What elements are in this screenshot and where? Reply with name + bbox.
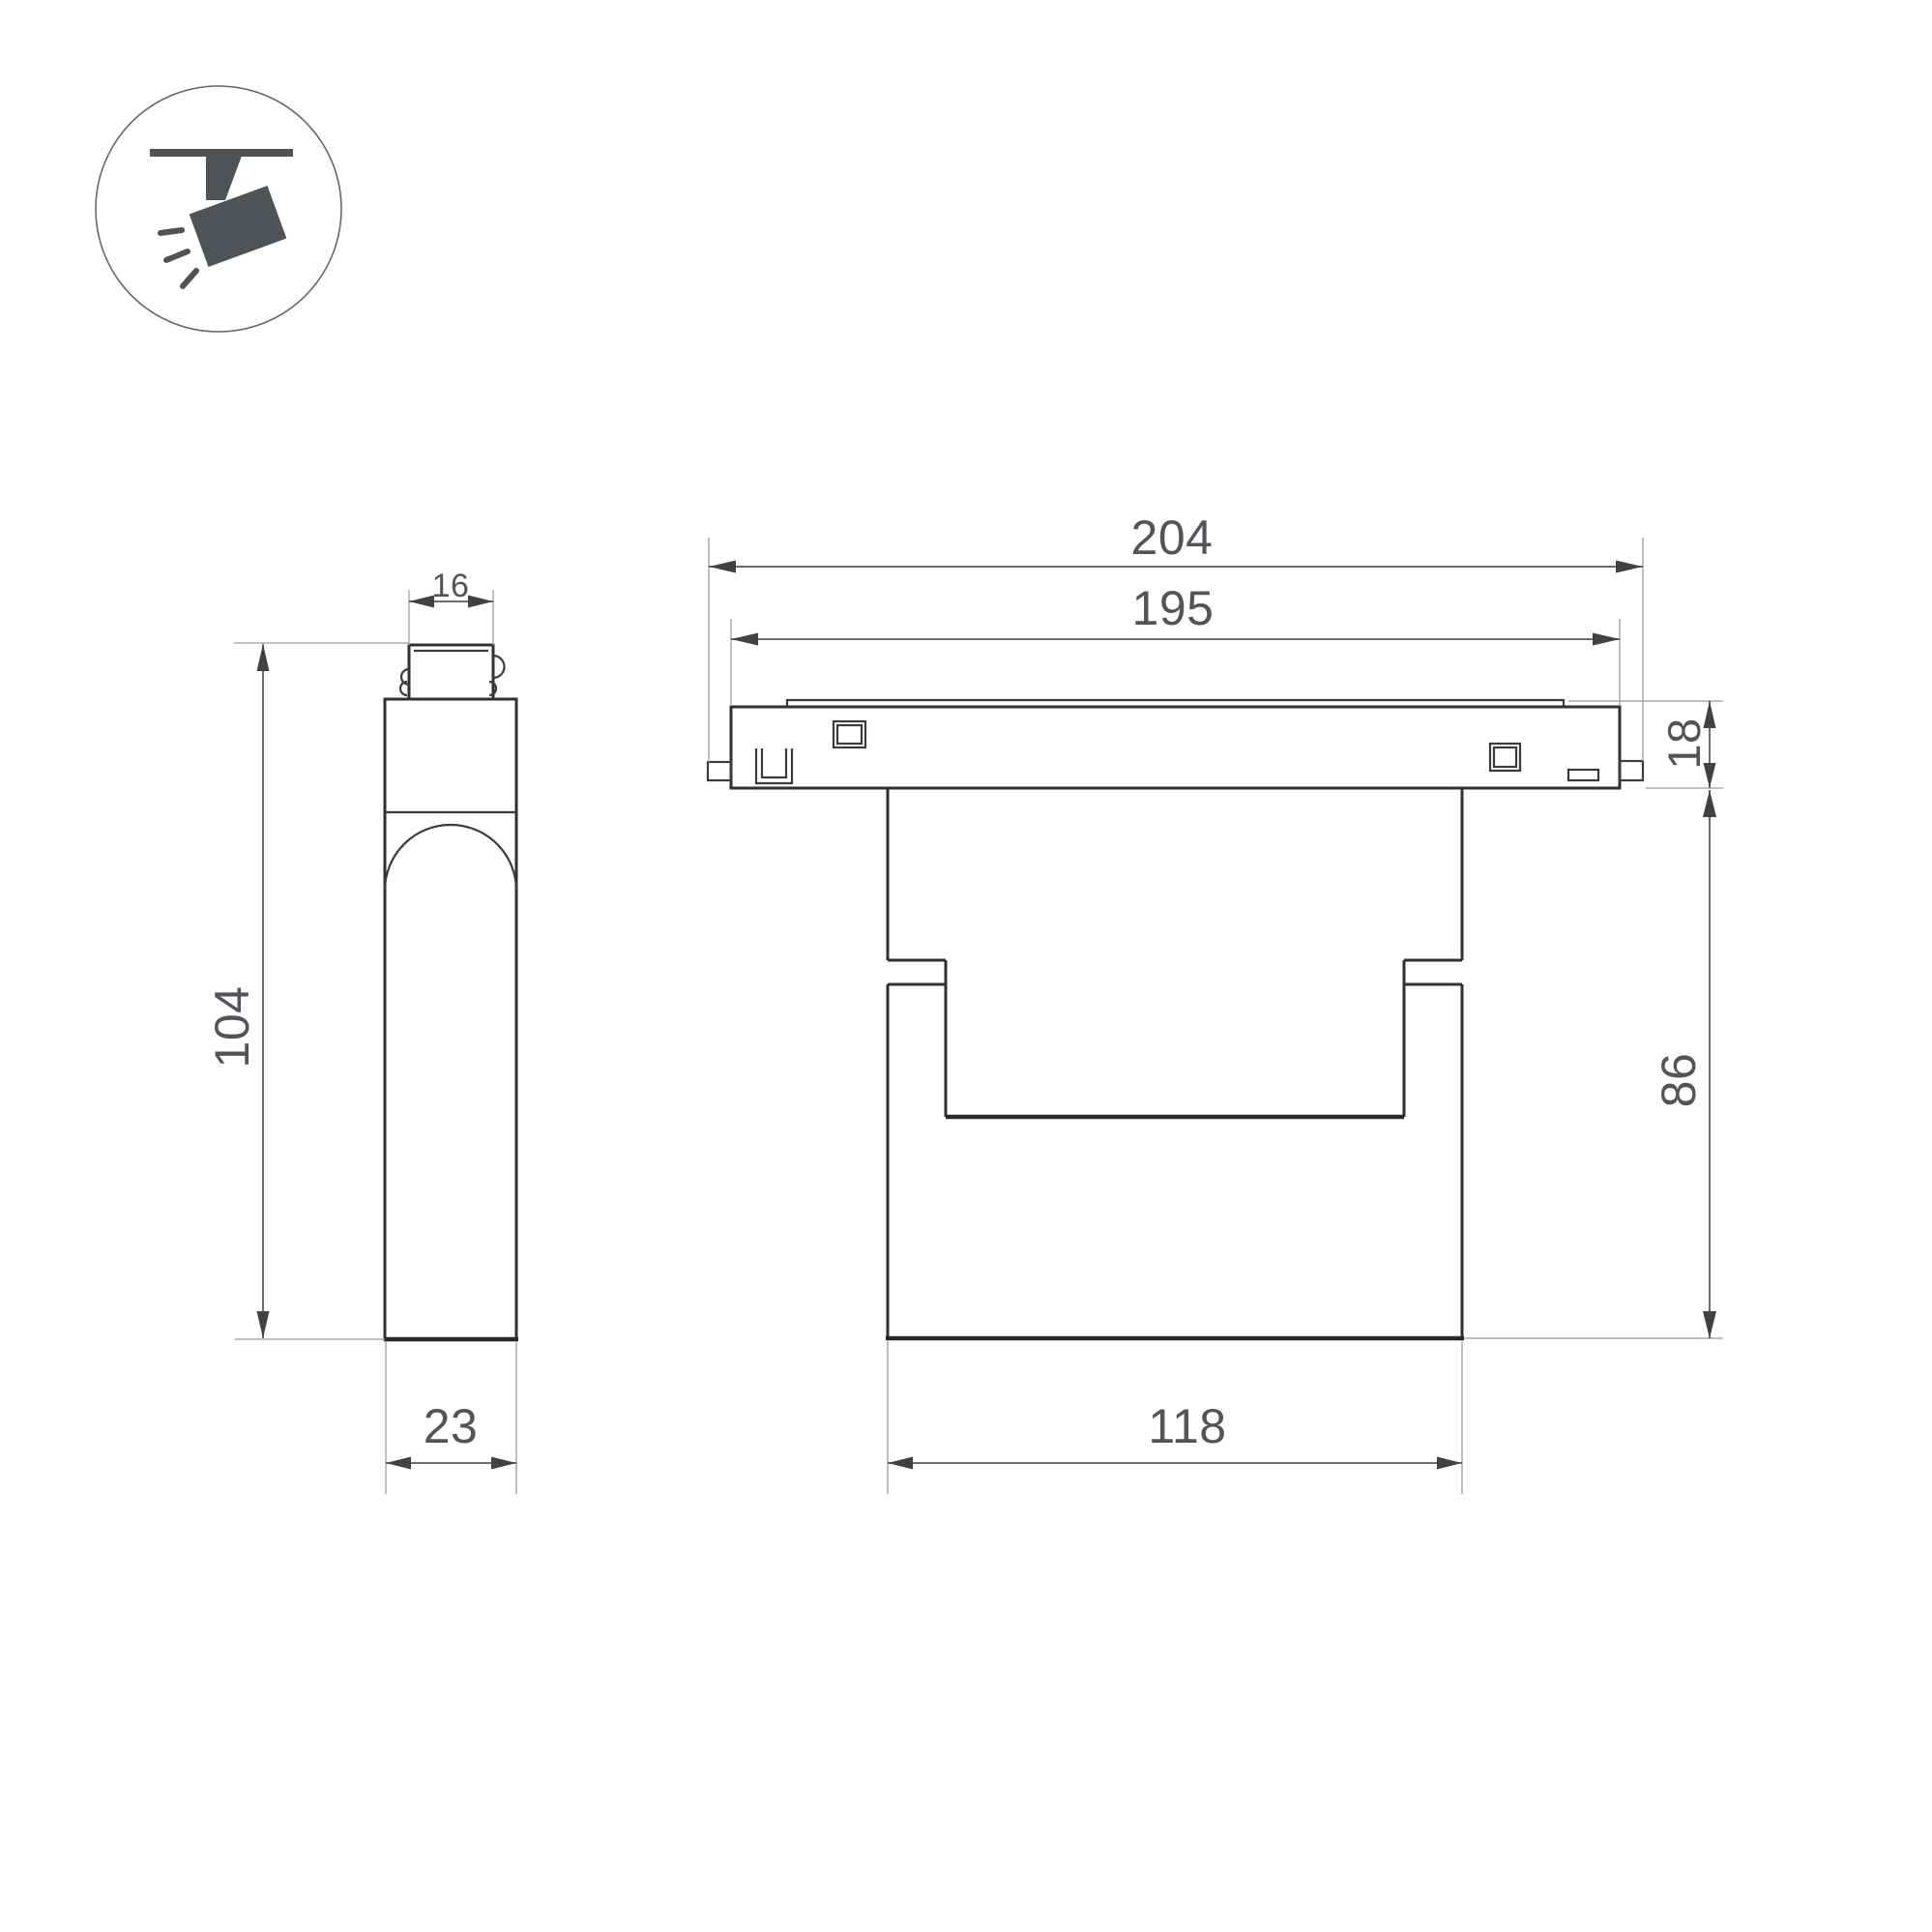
arrow-16-left [409,596,434,608]
track-spotlight-icon [96,86,341,332]
arrow-16-right [468,596,493,608]
front-track-u-clip [756,748,792,783]
arrow-86-bottom [1703,1311,1716,1338]
dim-value-body-width: 118 [1148,1399,1226,1453]
front-track-right-square-inner [1494,747,1516,767]
dim-value-track-height: 18 [1658,717,1710,769]
side-body-outline [385,699,516,1339]
arrow-118-right [1437,1457,1462,1470]
dim-value-fixture-height: 104 [205,986,259,1068]
dim-value-body-height: 86 [1652,1053,1706,1108]
dim-value-overall-length: 204 [1131,511,1214,565]
side-connector-outline [409,645,493,699]
arrow-23-left [386,1457,411,1470]
light-ray-1 [161,230,182,233]
dim-value-track-length: 195 [1132,581,1215,635]
ext-lines-104 [234,643,409,1339]
arrow-204-left [709,561,736,573]
front-track-left-square-inner [837,725,862,744]
ext-lines-18-86 [1464,701,1723,1338]
arrow-23-right [491,1457,516,1470]
arrow-86-top [1703,790,1716,817]
dim-value-connector-width: 16 [432,568,470,604]
ext-lines-204 [709,538,1643,762]
arrow-104-top [257,644,270,671]
side-clip-right-bump [493,656,505,678]
dimension-arrowheads [257,561,1717,1470]
side-view [384,645,518,1339]
front-track-right-pin [1620,761,1643,780]
front-track-left-pin [708,762,731,780]
front-view [708,700,1643,1338]
front-track-flat-slot [1568,770,1598,780]
technical-drawing-page: 16 204 195 104 18 86 23 118 [0,0,1932,1932]
arrow-104-bottom [257,1311,270,1338]
side-body-dome-arc [385,825,516,891]
arrow-195-left [731,633,758,646]
arrow-204-right [1616,561,1643,573]
arrow-118-left [888,1457,913,1470]
ceiling-track-bar-icon [150,149,293,157]
dimensions: 16 204 195 104 18 86 23 118 [205,511,1723,1494]
dimensional-drawing-canvas: 16 204 195 104 18 86 23 118 [0,0,1932,1932]
front-body-outline [888,788,1462,1338]
arrow-195-right [1593,633,1620,646]
dim-value-base-depth: 23 [424,1399,479,1453]
